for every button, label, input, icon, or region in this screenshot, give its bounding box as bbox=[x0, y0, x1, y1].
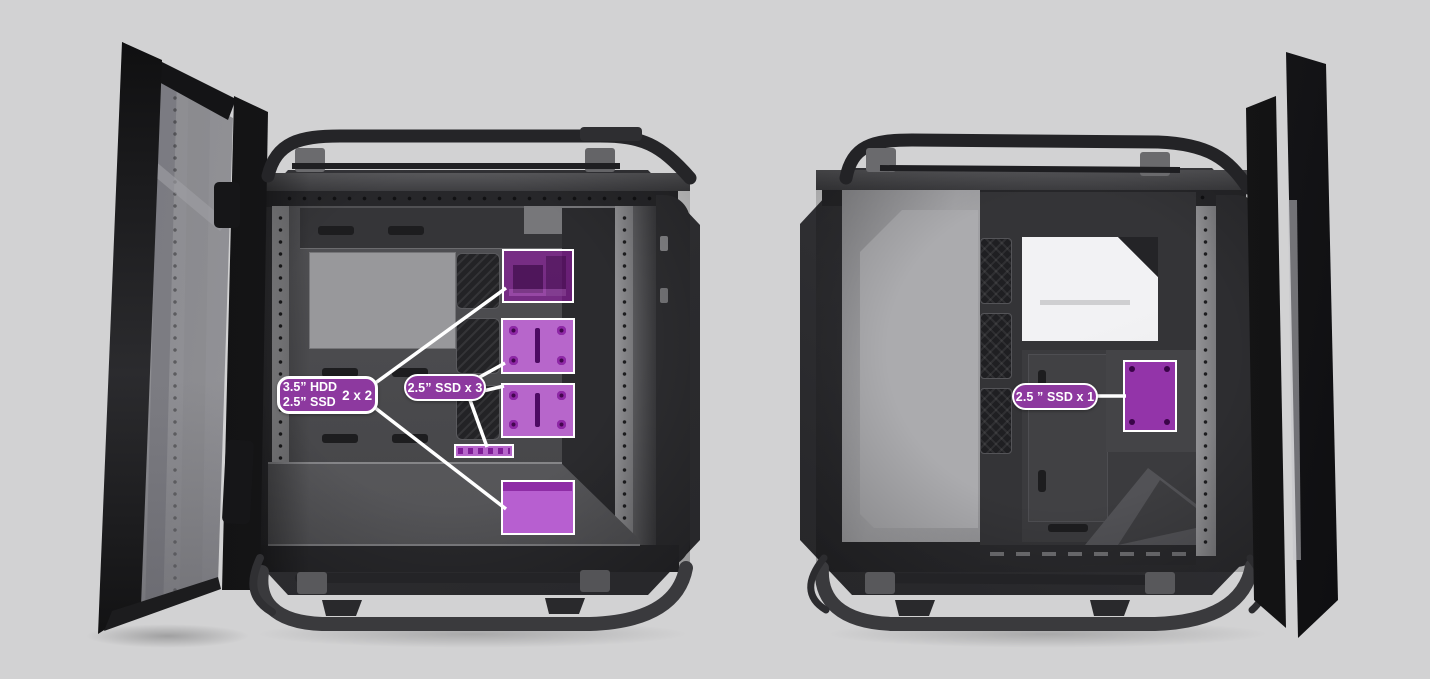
left-foot-front bbox=[322, 600, 362, 616]
left-bottom-band bbox=[255, 545, 679, 572]
left-rear-face bbox=[633, 206, 656, 560]
callout-line-hdd: 3.5” HDD bbox=[283, 380, 337, 395]
callout-label: 2.5” SSD x 3 bbox=[408, 381, 483, 395]
ssd-tray-lower-highlight bbox=[501, 383, 575, 438]
left-bottom-seam bbox=[268, 544, 640, 546]
callout-line-ssd: 2.5” SSD bbox=[283, 395, 337, 410]
psu-shroud-seam bbox=[268, 462, 562, 464]
drive-cage-highlight bbox=[502, 249, 574, 303]
door-hinge-upper bbox=[214, 182, 240, 228]
left-rear-rail-holes bbox=[620, 212, 629, 550]
panel-slot bbox=[1038, 470, 1046, 492]
tray-screw bbox=[557, 391, 566, 400]
motherboard-cutout bbox=[309, 252, 456, 349]
callout-label: 2.5 ” SSD x 1 bbox=[1016, 390, 1094, 404]
right-rear-rail-holes bbox=[1201, 212, 1210, 550]
right-foot-front bbox=[895, 600, 935, 616]
latch-tab bbox=[660, 236, 668, 251]
right-rail-hook-front bbox=[811, 558, 826, 610]
right-foot-rear bbox=[1090, 600, 1130, 616]
left-case-shadow bbox=[255, 620, 690, 648]
latch-tab bbox=[660, 288, 668, 303]
right-case-shadow bbox=[825, 620, 1270, 648]
side-vent-bottom bbox=[980, 388, 1012, 454]
right-top-face bbox=[816, 170, 1250, 190]
tray-screw bbox=[509, 356, 518, 365]
callout-drive-types: 3.5” HDD 2.5” SSD bbox=[283, 380, 337, 411]
left-door-shadow bbox=[85, 624, 250, 648]
tray-slot bbox=[535, 393, 540, 427]
mount-screw bbox=[1164, 419, 1170, 425]
callout-ssd-x3: 2.5” SSD x 3 bbox=[404, 374, 486, 401]
mount-screw bbox=[1129, 366, 1135, 372]
routing-slot bbox=[392, 434, 428, 443]
rear-ssd-mount-highlight bbox=[1123, 360, 1177, 432]
shroud-mount-edge bbox=[503, 482, 572, 491]
callout-ssd-x1: 2.5 ” SSD x 1 bbox=[1012, 383, 1098, 410]
door-hinge-lower bbox=[222, 439, 254, 524]
tray-screw bbox=[509, 420, 518, 429]
panel-slot bbox=[1048, 524, 1088, 532]
tray-screw bbox=[557, 326, 566, 335]
psu-shroud-mount-highlight bbox=[501, 480, 575, 535]
tray-screw bbox=[509, 326, 518, 335]
callout-hdd-ssd-combo: 3.5” HDD 2.5” SSD 2 x 2 bbox=[277, 376, 378, 414]
ssd-bracket-strip-highlight bbox=[454, 444, 514, 458]
mount-screw bbox=[1164, 366, 1170, 372]
tray-screw bbox=[509, 391, 518, 400]
right-bottom-dashes bbox=[990, 552, 1190, 556]
tray-screw bbox=[557, 420, 566, 429]
window-interior-line bbox=[1040, 300, 1130, 305]
product-annotation-image: 3.5” HDD 2.5” SSD 2 x 2 2.5” SSD x 3 2.5… bbox=[0, 0, 1430, 679]
left-handle-grip bbox=[580, 127, 642, 141]
left-top-hole-row bbox=[282, 195, 658, 202]
routing-slot bbox=[318, 226, 354, 235]
mount-screw bbox=[1129, 419, 1135, 425]
bracket-strip-detail bbox=[458, 448, 510, 454]
left-handle-support-front bbox=[295, 148, 325, 172]
tray-screw bbox=[557, 356, 566, 365]
cable-grommet-mid bbox=[456, 318, 500, 374]
side-vent-mid bbox=[980, 313, 1012, 379]
routing-slot bbox=[322, 434, 358, 443]
left-foot-rear bbox=[545, 598, 585, 614]
routing-slot bbox=[388, 226, 424, 235]
left-handle-support-rear bbox=[585, 148, 615, 172]
callout-quantity: 2 x 2 bbox=[342, 388, 372, 403]
ssd-tray-upper-highlight bbox=[501, 318, 575, 374]
cable-grommet-top bbox=[456, 253, 500, 309]
left-top-face bbox=[253, 173, 690, 191]
tray-slot bbox=[535, 328, 540, 363]
side-vent-top bbox=[980, 238, 1012, 304]
cage-inner-bar bbox=[509, 289, 566, 296]
